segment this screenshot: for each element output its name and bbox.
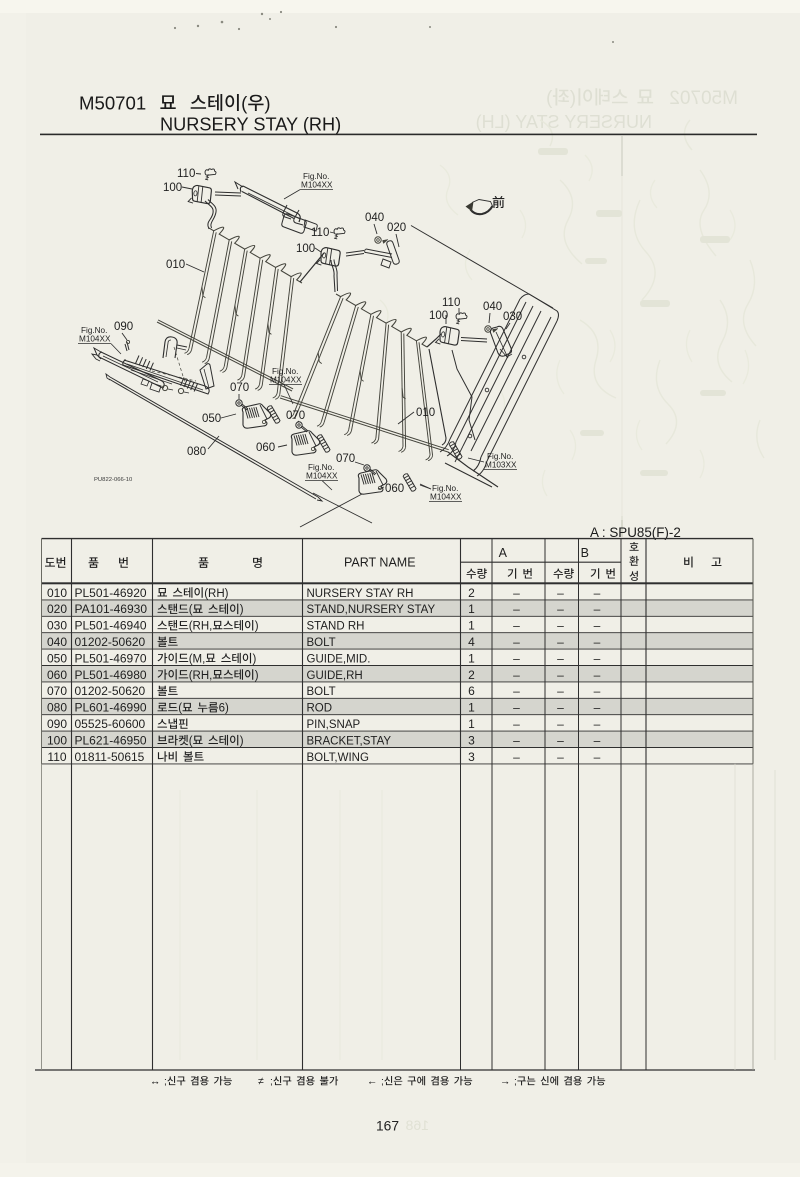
- svg-text:–: –: [513, 651, 520, 665]
- svg-text:PL501-46920: PL501-46920: [75, 586, 147, 600]
- svg-text:PL601-46990: PL601-46990: [75, 701, 147, 715]
- svg-text:): ): [253, 653, 257, 665]
- svg-text:;: ;: [514, 1077, 517, 1088]
- svg-text:;: ;: [164, 1077, 167, 1088]
- svg-text:–: –: [557, 602, 564, 616]
- svg-text:ROD: ROD: [307, 703, 333, 715]
- svg-text:3: 3: [468, 750, 475, 764]
- svg-text:100: 100: [47, 733, 67, 747]
- svg-text:GUIDE,MID.: GUIDE,MID.: [307, 653, 371, 665]
- svg-text:010: 010: [416, 407, 435, 419]
- svg-text:1: 1: [468, 701, 475, 715]
- svg-text:–: –: [513, 701, 520, 715]
- svg-text:↔: ↔: [150, 1076, 161, 1088]
- svg-text:(RH,: (RH,: [189, 621, 213, 633]
- svg-text:M50701: M50701: [79, 93, 146, 114]
- svg-text:–: –: [513, 684, 520, 698]
- svg-text:A: A: [499, 546, 508, 560]
- svg-text:01811-50615: 01811-50615: [75, 750, 145, 764]
- svg-text:080: 080: [47, 701, 67, 715]
- svg-text:(: (: [178, 703, 182, 715]
- svg-text:–: –: [594, 733, 601, 747]
- svg-text:): ): [240, 735, 244, 747]
- svg-text:110: 110: [442, 297, 460, 309]
- svg-text:1: 1: [468, 602, 475, 616]
- svg-text:–: –: [513, 619, 520, 633]
- svg-text:060: 060: [385, 483, 404, 495]
- svg-text:4: 4: [468, 635, 475, 649]
- svg-text:–: –: [557, 733, 564, 747]
- svg-text:060: 060: [47, 668, 67, 682]
- svg-text:(: (: [189, 604, 193, 616]
- svg-text:110: 110: [177, 168, 195, 180]
- svg-text:070: 070: [230, 382, 249, 394]
- svg-text:PA101-46930: PA101-46930: [75, 602, 148, 616]
- svg-text:020: 020: [387, 222, 406, 234]
- svg-text:010: 010: [47, 586, 67, 600]
- svg-text:–: –: [594, 717, 601, 731]
- svg-text:2: 2: [468, 586, 475, 600]
- svg-text:020: 020: [47, 602, 67, 616]
- svg-text:060: 060: [256, 442, 275, 454]
- svg-text:STAND,NURSERY STAY: STAND,NURSERY STAY: [307, 604, 436, 616]
- svg-text:1: 1: [468, 717, 475, 731]
- svg-text:110: 110: [47, 750, 66, 764]
- svg-text:3: 3: [468, 733, 475, 747]
- svg-text:167: 167: [376, 1119, 399, 1134]
- svg-text:040: 040: [365, 212, 384, 224]
- svg-text:100: 100: [296, 243, 315, 255]
- svg-text:110: 110: [311, 227, 329, 239]
- svg-text:STAND RH: STAND RH: [307, 621, 365, 633]
- svg-text:): ): [255, 621, 259, 633]
- svg-text:050: 050: [47, 651, 67, 665]
- svg-text:NURSERY STAY (RH): NURSERY STAY (RH): [160, 115, 341, 135]
- svg-text:168: 168: [405, 1117, 429, 1133]
- svg-text:090: 090: [114, 321, 133, 333]
- svg-text:–: –: [594, 701, 601, 715]
- svg-text:1: 1: [468, 651, 475, 665]
- svg-text:←: ←: [367, 1076, 378, 1088]
- svg-text:–: –: [594, 684, 601, 698]
- svg-text:–: –: [557, 668, 564, 682]
- svg-text:B: B: [581, 546, 589, 560]
- svg-text:;: ;: [270, 1077, 273, 1088]
- svg-text:2: 2: [468, 668, 475, 682]
- svg-text:NURSERY STAY RH: NURSERY STAY RH: [307, 588, 414, 600]
- svg-text:(: (: [569, 88, 576, 109]
- svg-text:100: 100: [163, 182, 182, 194]
- svg-text:040: 040: [483, 301, 502, 313]
- svg-text:6: 6: [468, 684, 475, 698]
- svg-text:–: –: [557, 635, 564, 649]
- svg-text:PU822-066-10: PU822-066-10: [94, 477, 133, 483]
- svg-text:–: –: [594, 668, 601, 682]
- svg-text:(RH): (RH): [204, 588, 228, 600]
- svg-text:–: –: [557, 750, 564, 764]
- svg-text:–: –: [557, 701, 564, 715]
- svg-text:PL501-46970: PL501-46970: [75, 651, 147, 665]
- svg-text:090: 090: [47, 717, 67, 731]
- svg-text:PIN,SNAP: PIN,SNAP: [307, 719, 361, 731]
- svg-text:6): 6): [219, 703, 229, 715]
- svg-text:M103XX: M103XX: [485, 461, 517, 470]
- svg-text:M104XX: M104XX: [270, 376, 302, 385]
- svg-text:100: 100: [429, 310, 448, 322]
- svg-text:01202-50620: 01202-50620: [75, 684, 146, 698]
- svg-text:→: →: [500, 1076, 511, 1088]
- svg-text:05525-60600: 05525-60600: [75, 717, 146, 731]
- svg-text:01202-50620: 01202-50620: [75, 635, 146, 649]
- svg-text:–: –: [594, 635, 601, 649]
- svg-text:NURSERY STAY (LH): NURSERY STAY (LH): [476, 112, 652, 132]
- svg-text:–: –: [594, 651, 601, 665]
- svg-text:PART NAME: PART NAME: [344, 556, 416, 570]
- svg-text:–: –: [557, 684, 564, 698]
- svg-text:M104XX: M104XX: [301, 181, 333, 190]
- svg-text:–: –: [594, 602, 601, 616]
- svg-text:080: 080: [187, 446, 206, 458]
- svg-text:–: –: [513, 750, 520, 764]
- svg-text:A : SPU85(F)-2: A : SPU85(F)-2: [590, 525, 681, 540]
- svg-text:–: –: [513, 602, 520, 616]
- svg-text:–: –: [513, 733, 520, 747]
- svg-text:BOLT: BOLT: [307, 637, 336, 649]
- svg-text:–: –: [594, 619, 601, 633]
- svg-text:070: 070: [336, 453, 355, 465]
- svg-text:(M,: (M,: [189, 653, 206, 665]
- svg-text:GUIDE,RH: GUIDE,RH: [307, 670, 363, 682]
- svg-text:(: (: [189, 735, 193, 747]
- svg-text:030: 030: [47, 619, 67, 633]
- svg-text:M104XX: M104XX: [306, 472, 338, 481]
- svg-text:PL501-46980: PL501-46980: [75, 668, 147, 682]
- svg-text:–: –: [513, 717, 520, 731]
- svg-text:): ): [546, 88, 552, 109]
- svg-text:010: 010: [166, 259, 185, 271]
- svg-text:;: ;: [381, 1077, 384, 1088]
- svg-text:–: –: [594, 750, 601, 764]
- svg-text:M104XX: M104XX: [430, 493, 462, 502]
- svg-text:(: (: [241, 93, 248, 114]
- svg-text:050: 050: [202, 413, 221, 425]
- svg-text:≠: ≠: [258, 1076, 264, 1088]
- svg-text:BOLT,WING: BOLT,WING: [307, 752, 369, 764]
- svg-text:(RH,: (RH,: [189, 670, 213, 682]
- svg-text:040: 040: [47, 635, 67, 649]
- svg-text:–: –: [513, 586, 520, 600]
- svg-text:–: –: [557, 651, 564, 665]
- svg-text:BRACKET,STAY: BRACKET,STAY: [307, 735, 392, 747]
- svg-text:–: –: [557, 619, 564, 633]
- svg-text:PL621-46950: PL621-46950: [75, 733, 147, 747]
- svg-text:070: 070: [286, 410, 305, 422]
- svg-text:M104XX: M104XX: [79, 335, 111, 344]
- svg-text:070: 070: [47, 684, 67, 698]
- svg-text:–: –: [594, 586, 601, 600]
- svg-text:BOLT: BOLT: [307, 686, 336, 698]
- svg-text:–: –: [557, 717, 564, 731]
- svg-text:–: –: [557, 586, 564, 600]
- svg-text:1: 1: [468, 619, 475, 633]
- svg-text:M50702: M50702: [669, 88, 738, 109]
- svg-text:–: –: [513, 635, 520, 649]
- svg-text:–: –: [513, 668, 520, 682]
- svg-text:030: 030: [503, 311, 522, 323]
- svg-text:): ): [240, 604, 244, 616]
- svg-text:): ): [264, 93, 270, 114]
- svg-text:PL501-46940: PL501-46940: [75, 619, 147, 633]
- svg-text:): ): [255, 670, 259, 682]
